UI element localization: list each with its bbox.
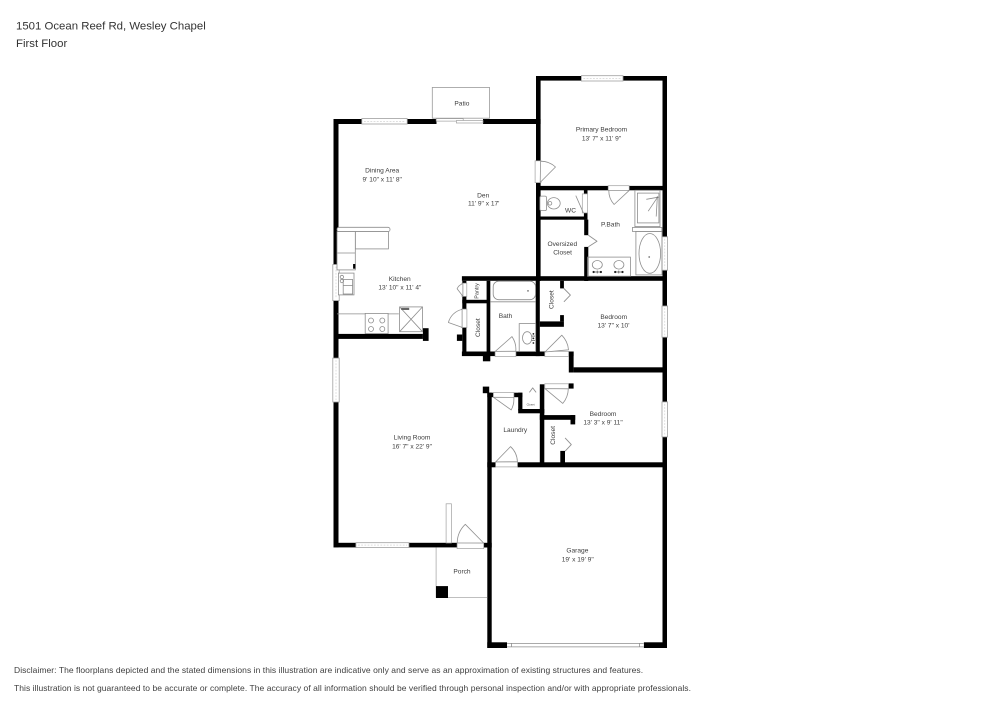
- svg-text:P.Bath: P.Bath: [601, 222, 620, 229]
- svg-text:13' 7" x 10': 13' 7" x 10': [598, 323, 630, 330]
- svg-text:Primary Bedroom: Primary Bedroom: [576, 127, 628, 134]
- svg-text:Pantry: Pantry: [475, 283, 481, 299]
- svg-text:Laundry: Laundry: [503, 427, 528, 434]
- svg-text:Closet: Closet: [527, 403, 535, 407]
- svg-text:Porch: Porch: [453, 568, 471, 575]
- svg-text:Closet: Closet: [548, 290, 555, 309]
- svg-text:13' 7" x 11' 9": 13' 7" x 11' 9": [582, 136, 622, 143]
- svg-text:Bath: Bath: [499, 313, 513, 320]
- svg-text:9' 10" x 11' 8": 9' 10" x 11' 8": [363, 176, 403, 183]
- svg-text:Patio: Patio: [454, 100, 469, 107]
- svg-text:19' x 19' 9": 19' x 19' 9": [562, 556, 595, 563]
- svg-text:Closet: Closet: [550, 426, 557, 445]
- svg-text:16' 7" x 22' 9": 16' 7" x 22' 9": [392, 444, 432, 451]
- svg-text:This illustration is not guara: This illustration is not guaranteed to b…: [14, 683, 691, 693]
- svg-text:Oversized: Oversized: [547, 241, 577, 248]
- svg-text:Den: Den: [477, 192, 489, 199]
- svg-text:Closet: Closet: [553, 250, 572, 257]
- svg-text:Closet: Closet: [475, 318, 482, 337]
- svg-text:Bedroom: Bedroom: [600, 314, 627, 321]
- svg-text:Bedroom: Bedroom: [590, 411, 617, 418]
- svg-text:WC: WC: [565, 208, 576, 215]
- svg-text:Living Room: Living Room: [394, 434, 431, 441]
- svg-text:1501 Ocean Reef Rd, Wesley Cha: 1501 Ocean Reef Rd, Wesley Chapel: [16, 21, 206, 33]
- svg-text:13' 10" x 11' 4": 13' 10" x 11' 4": [378, 285, 422, 292]
- svg-text:11' 9" x 17': 11' 9" x 17': [468, 201, 500, 208]
- svg-text:Dining Area: Dining Area: [365, 167, 399, 174]
- svg-text:First Floor: First Floor: [16, 38, 67, 50]
- svg-text:Garage: Garage: [566, 547, 588, 554]
- svg-text:Disclaimer: The floorplans dep: Disclaimer: The floorplans depicted and …: [14, 665, 643, 675]
- svg-text:13' 3" x 9' 11": 13' 3" x 9' 11": [583, 419, 623, 426]
- svg-text:Kitchen: Kitchen: [389, 276, 411, 283]
